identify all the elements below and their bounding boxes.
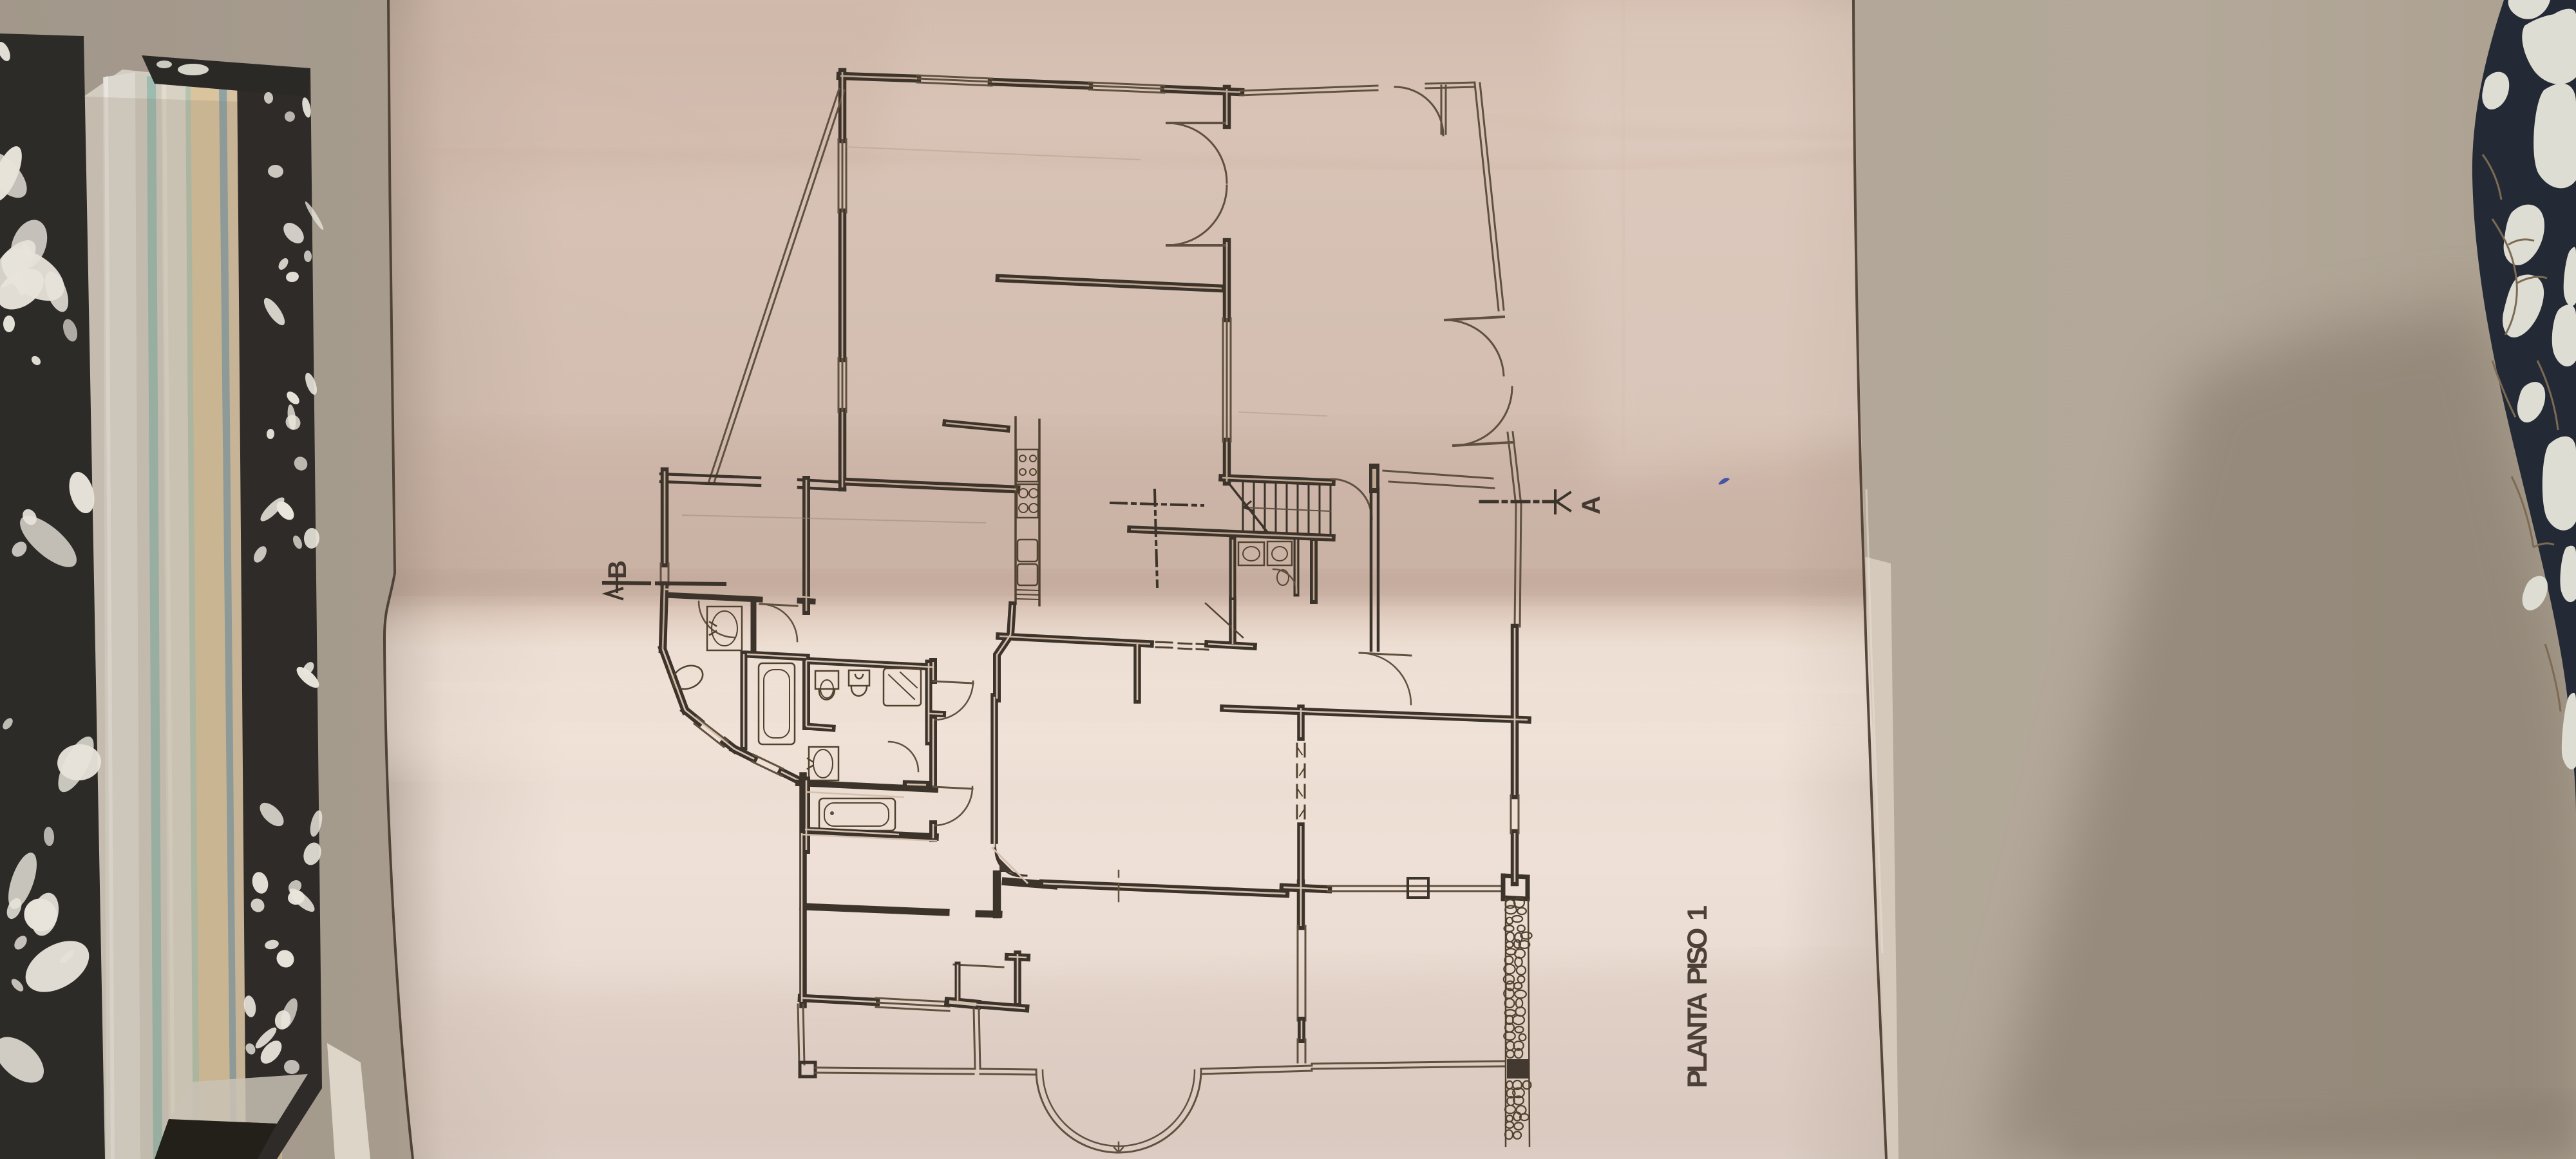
svg-text:B: B [603,560,632,579]
svg-text:A: A [1577,496,1605,514]
svg-text:PLANTA PISO 1: PLANTA PISO 1 [1682,903,1713,1088]
